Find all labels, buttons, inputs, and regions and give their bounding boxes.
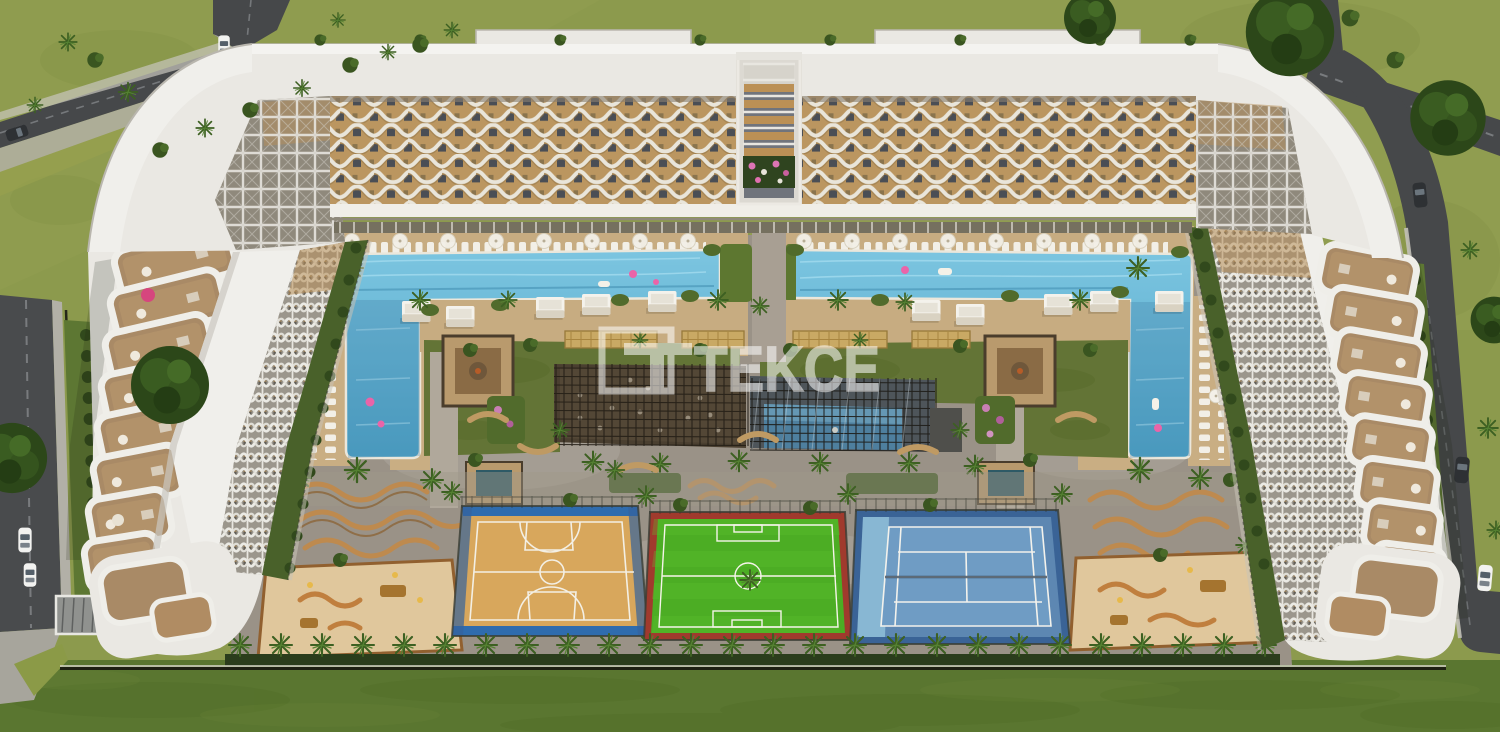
svg-text:TEKCE: TEKCE [694,333,880,405]
